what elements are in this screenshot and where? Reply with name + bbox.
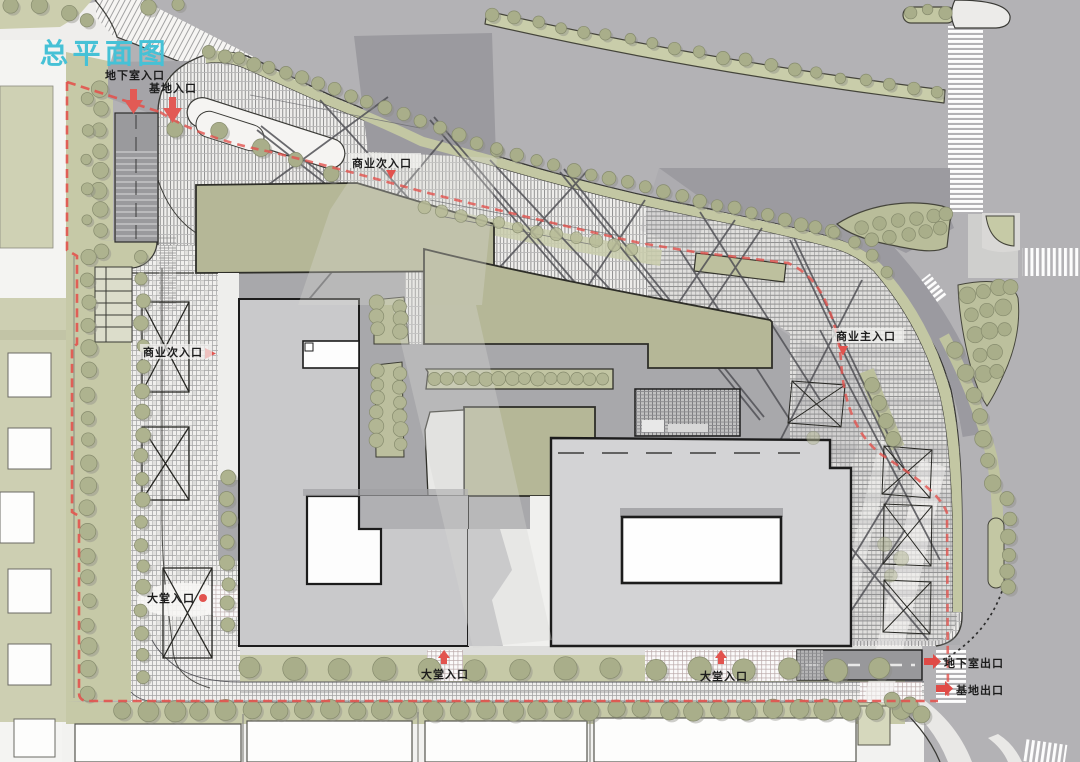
svg-text:地下室出口: 地下室出口 [944,656,1004,670]
svg-text:大堂入口: 大堂入口 [700,669,748,683]
svg-text:基地出口: 基地出口 [955,683,1004,697]
svg-text:总平面图: 总平面图 [40,38,170,69]
svg-text:商业次入口: 商业次入口 [143,345,203,359]
svg-text:商业次入口: 商业次入口 [352,156,412,170]
svg-text:地下室入口: 地下室入口 [105,68,165,82]
svg-text:商业主入口: 商业主入口 [836,329,896,343]
svg-text:基地入口: 基地入口 [148,81,197,95]
svg-text:大堂入口: 大堂入口 [421,667,469,681]
svg-text:大堂入口: 大堂入口 [147,591,195,605]
